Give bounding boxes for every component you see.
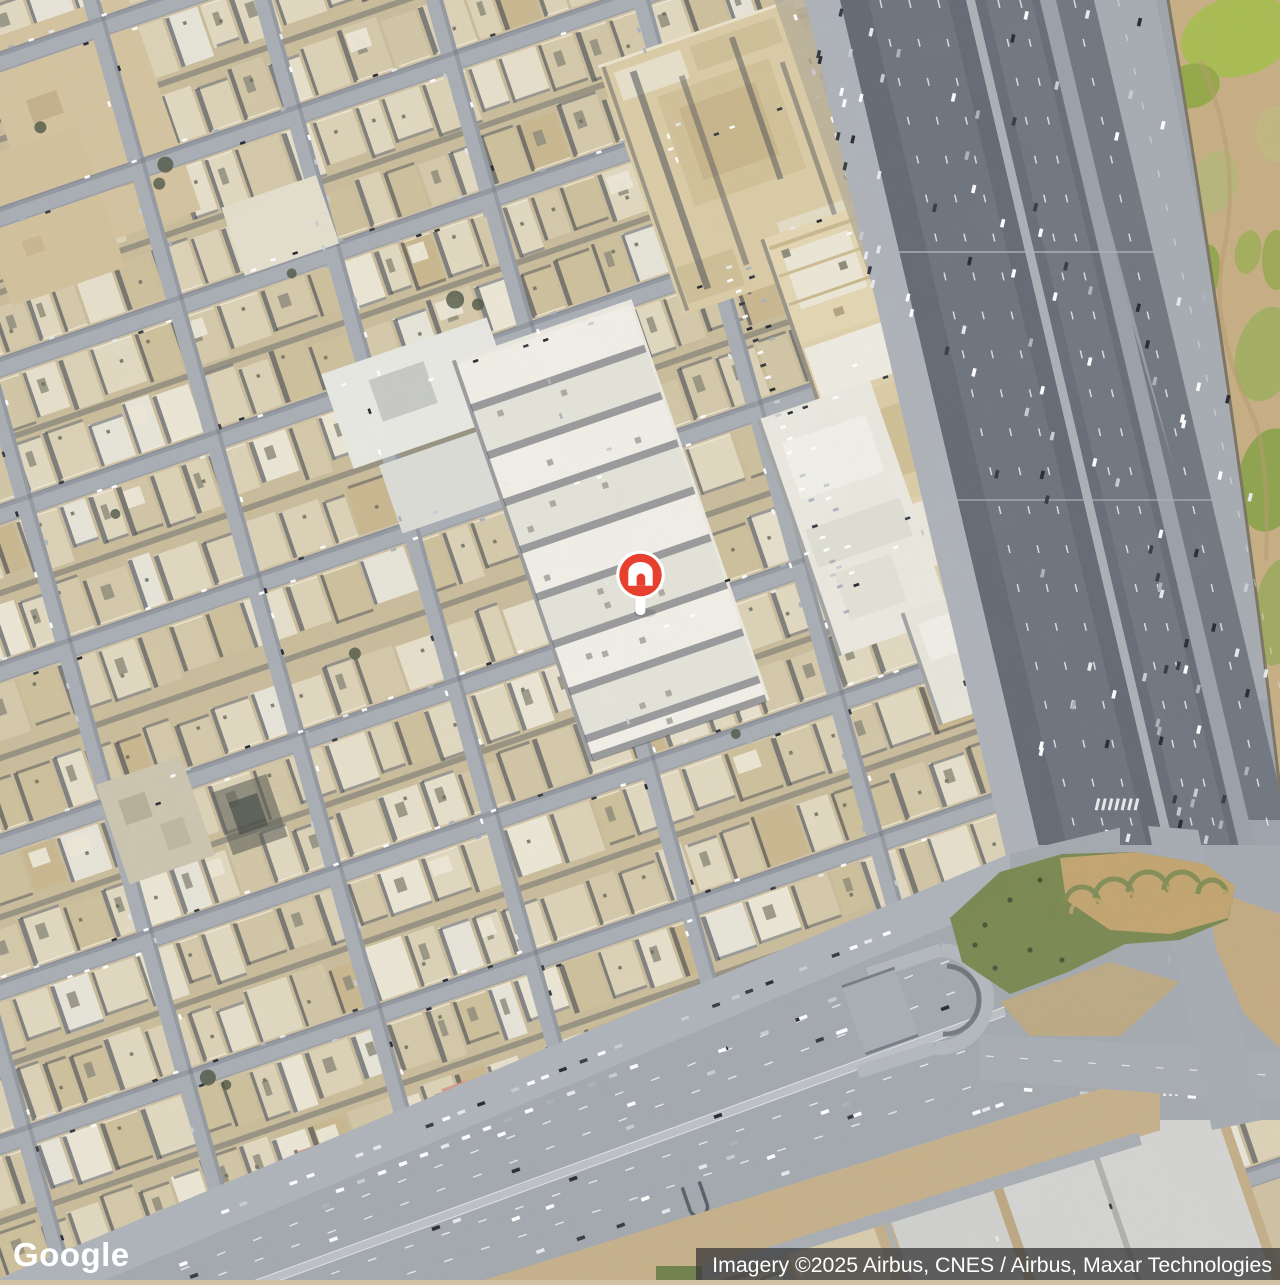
svg-text:Imagery ©2025 Airbus, CNES / A: Imagery ©2025 Airbus, CNES / Airbus, Max… (712, 1253, 1272, 1277)
svg-text:Google: Google (13, 1236, 130, 1273)
